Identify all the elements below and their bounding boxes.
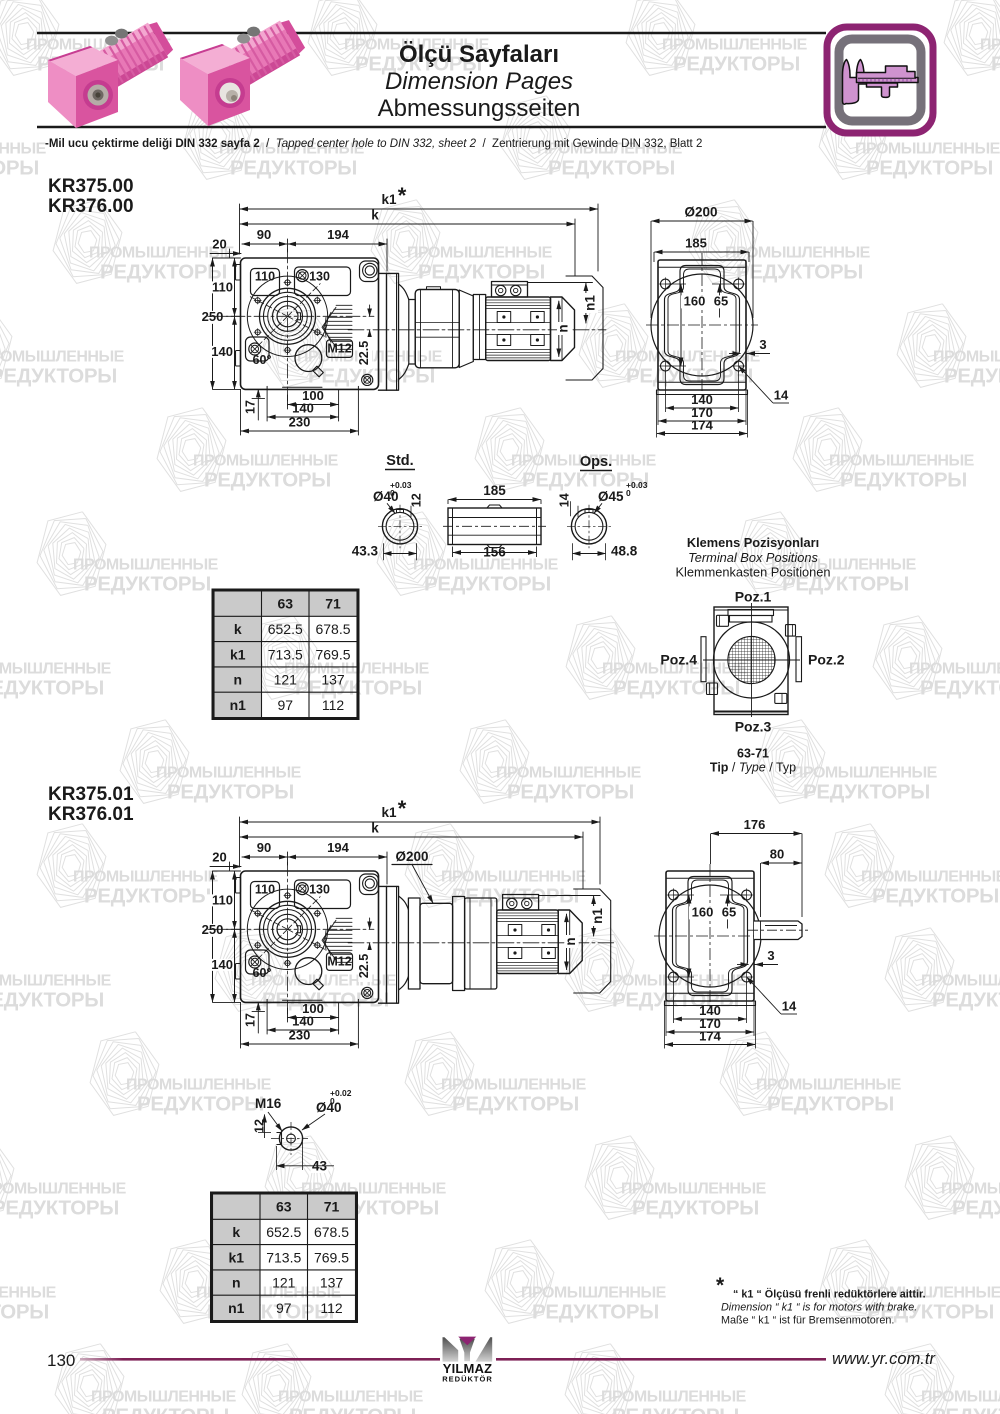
svg-text:194: 194 [327,227,349,242]
svg-text:65: 65 [722,905,736,920]
svg-text:60°: 60° [253,353,272,367]
svg-text:Ø40: Ø40 [316,1100,342,1115]
svg-text:22.5: 22.5 [357,341,371,365]
svg-text:652.5: 652.5 [268,621,303,637]
svg-text:*: * [716,1274,725,1297]
svg-text:KR376.00: KR376.00 [48,196,134,217]
svg-text:90: 90 [257,227,271,242]
svg-text:110: 110 [212,893,233,908]
svg-text:14: 14 [774,388,789,403]
svg-text:112: 112 [322,697,345,713]
svg-text:M16: M16 [255,1096,282,1111]
svg-text:KR375.00: KR375.00 [48,176,134,197]
svg-text:769.5: 769.5 [314,1249,349,1265]
svg-text:22.5: 22.5 [357,954,371,978]
svg-text:63: 63 [276,1199,292,1215]
svg-text:97: 97 [277,697,293,713]
svg-text:*: * [398,796,407,821]
svg-text:k: k [234,621,242,637]
svg-text:M12: M12 [327,955,351,969]
svg-text:Klemens Pozisyonları: Klemens Pozisyonları [687,535,819,550]
svg-text:110: 110 [212,280,233,295]
svg-text:230: 230 [289,1028,311,1043]
svg-text:20: 20 [212,850,226,865]
svg-text:140: 140 [211,957,233,972]
svg-text:n: n [556,324,571,332]
svg-text:713.5: 713.5 [268,646,303,662]
svg-text:185: 185 [483,483,506,498]
svg-text:Ops.: Ops. [580,454,612,470]
svg-text:Abmessungsseiten: Abmessungsseiten [378,95,581,122]
svg-text:140: 140 [211,344,233,359]
svg-text:k1: k1 [381,805,397,820]
svg-text:121: 121 [272,1275,296,1291]
svg-text:Poz.3: Poz.3 [735,719,772,735]
svg-text:Std.: Std. [386,453,413,469]
svg-text:80: 80 [770,847,784,862]
svg-text:Ölçü Sayfaları: Ölçü Sayfaları [399,41,559,68]
svg-text:n1: n1 [583,295,598,311]
svg-text:90: 90 [257,840,271,855]
svg-text:185: 185 [685,236,707,251]
svg-text:Poz.1: Poz.1 [735,589,772,605]
svg-text:71: 71 [325,596,341,612]
svg-text:Ø45: Ø45 [598,489,624,504]
svg-text:130: 130 [309,883,330,897]
svg-text:160: 160 [692,905,714,920]
svg-text:n1: n1 [230,697,247,713]
svg-text:Dimension “ k1 “ is for motors: Dimension “ k1 “ is for motors with brak… [721,1302,917,1314]
svg-text:k1: k1 [230,646,246,662]
svg-text:3: 3 [767,948,774,963]
svg-text:97: 97 [276,1300,292,1316]
svg-text:0: 0 [626,488,631,498]
svg-text:k1: k1 [228,1249,244,1265]
svg-text:112: 112 [320,1300,343,1316]
svg-text:KR375.01: KR375.01 [48,784,134,805]
svg-text:63-71: 63-71 [737,747,769,761]
svg-text:k: k [232,1224,240,1240]
svg-text:652.5: 652.5 [266,1224,301,1240]
svg-text:17: 17 [244,1013,258,1027]
svg-text:Tip / Type / Typ: Tip / Type / Typ [710,761,796,775]
svg-text:174: 174 [691,418,713,433]
svg-text:KR376.01: KR376.01 [48,804,134,825]
svg-text:k: k [371,821,379,836]
svg-text:n1: n1 [590,908,605,924]
svg-text:Terminal Box Positions: Terminal Box Positions [688,550,818,565]
svg-text:n1: n1 [228,1300,245,1316]
svg-text:130: 130 [309,270,330,284]
svg-text:156: 156 [483,545,506,560]
svg-text:20: 20 [212,237,226,252]
svg-text:194: 194 [327,840,349,855]
svg-text:n: n [563,937,578,945]
svg-text:43.3: 43.3 [352,543,379,558]
svg-text:Maße “ k1 “ ist für Bremsenmot: Maße “ k1 “ ist für Bremsenmotoren. [721,1315,894,1327]
svg-text:*: * [398,183,407,208]
svg-text:“ k1 “ Ölçüsü frenli redüktörl: “ k1 “ Ölçüsü frenli redüktörlere aittir… [733,1288,926,1301]
svg-text:Klemmenkasten Positionen: Klemmenkasten Positionen [675,565,830,580]
svg-text:k1: k1 [381,192,397,207]
svg-text:M12: M12 [327,342,351,356]
svg-text:713.5: 713.5 [266,1249,301,1265]
svg-text:n: n [233,672,242,688]
svg-text:110: 110 [255,270,275,284]
svg-text:Poz.2: Poz.2 [808,652,845,668]
svg-text:130: 130 [47,1351,75,1370]
svg-text:160: 160 [684,294,706,309]
svg-text:71: 71 [324,1199,340,1215]
svg-text:60°: 60° [253,966,272,980]
svg-text:137: 137 [320,1275,344,1291]
svg-text:63: 63 [277,596,293,612]
svg-text:176: 176 [744,817,766,832]
svg-text:140: 140 [292,1014,314,1029]
svg-text:678.5: 678.5 [315,621,350,637]
svg-text:k: k [371,208,379,223]
svg-text:110: 110 [255,883,275,897]
svg-text:174: 174 [699,1029,721,1044]
svg-text:65: 65 [714,294,728,309]
svg-text:0: 0 [390,488,395,498]
svg-text:Dimension Pages: Dimension Pages [385,68,573,95]
svg-text:Poz.4: Poz.4 [660,652,697,668]
svg-text:0: 0 [330,1096,335,1106]
svg-text:14: 14 [782,999,797,1014]
svg-text:137: 137 [321,672,345,688]
svg-text:230: 230 [289,415,311,430]
svg-text:12: 12 [410,493,424,507]
svg-text:121: 121 [274,672,298,688]
svg-text:REDÜKTÖR: REDÜKTÖR [442,1374,493,1383]
svg-text:14: 14 [558,493,572,507]
svg-text:www.yr.com.tr: www.yr.com.tr [832,1350,936,1368]
svg-text:678.5: 678.5 [314,1224,349,1240]
svg-text:48.8: 48.8 [611,543,638,558]
svg-text:769.5: 769.5 [315,646,350,662]
svg-text:3: 3 [759,337,766,352]
svg-text:n: n [232,1275,241,1291]
svg-text:17: 17 [244,400,258,414]
svg-text:-Mil ucu çektirme deliği DIN 3: -Mil ucu çektirme deliği DIN 332 sayfa 2… [45,138,702,150]
svg-text:Ø200: Ø200 [684,205,717,220]
svg-text:Ø200: Ø200 [395,849,428,864]
svg-text:140: 140 [292,401,314,416]
